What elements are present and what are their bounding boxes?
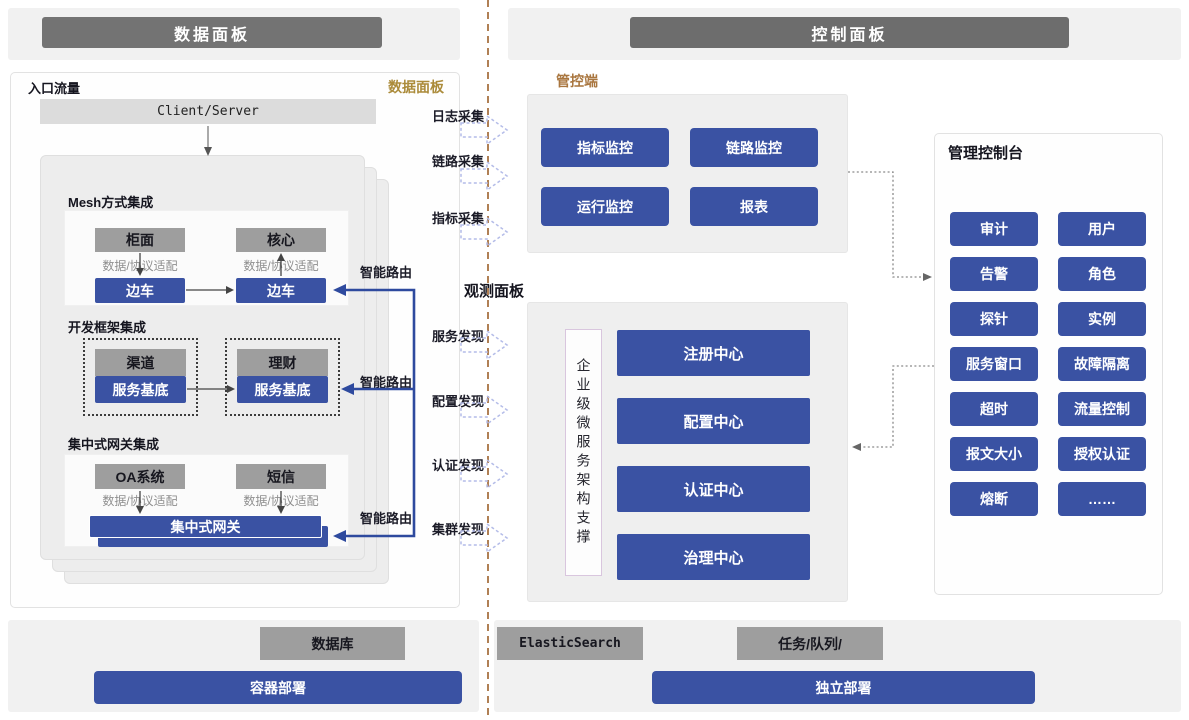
smart-route-label-1: 智能路由 xyxy=(337,262,412,281)
central-gateway-bar: 集中式网关 xyxy=(89,515,322,538)
architecture-diagram: 数据面板 控制面板 入口流量 数据面板 Client/Server Mesh方式… xyxy=(0,0,1189,720)
mesh-section-title: Mesh方式集成 xyxy=(68,192,153,211)
infra-standalone-deploy: 独立部署 xyxy=(652,671,1035,704)
gateway-adapter-left: 数据/协议适配 xyxy=(85,492,195,509)
gateway-node-oa: OA系统 xyxy=(95,464,185,489)
mesh-node-guimian: 柜面 xyxy=(95,228,185,252)
connector-arrowhead-right-icon xyxy=(923,273,932,281)
control-plane-header: 控制面板 xyxy=(630,17,1069,48)
infra-elasticsearch: ElasticSearch xyxy=(497,627,643,660)
framework-node-qudao: 渠道 xyxy=(95,349,186,376)
monitor-btn-metrics: 指标监控 xyxy=(541,128,669,167)
console-title: 管理控制台 xyxy=(948,142,1023,163)
center-auth: 认证中心 xyxy=(617,466,810,512)
framework-section-title: 开发框架集成 xyxy=(68,317,146,336)
console-btn-timeout: 超时 xyxy=(950,392,1038,426)
console-btn-instance: 实例 xyxy=(1058,302,1146,336)
service-base-right: 服务基底 xyxy=(237,376,328,403)
smart-route-label-3: 智能路由 xyxy=(337,508,412,527)
service-base-left: 服务基底 xyxy=(95,376,186,403)
console-btn-role: 角色 xyxy=(1058,257,1146,291)
monitor-btn-report: 报表 xyxy=(690,187,818,226)
observe-panel-title: 观测面板 xyxy=(452,280,536,301)
entry-traffic-label: 入口流量 xyxy=(28,78,80,97)
console-to-microservice-connector xyxy=(861,366,934,447)
gateway-adapter-right: 数据/协议适配 xyxy=(226,492,336,509)
console-btn-probe: 探针 xyxy=(950,302,1038,336)
mesh-node-hexin: 核心 xyxy=(236,228,326,252)
console-btn-fault-isolation: 故障隔离 xyxy=(1058,347,1146,381)
console-btn-alert: 告警 xyxy=(950,257,1038,291)
console-btn-message-size: 报文大小 xyxy=(950,437,1038,471)
client-server-bar: Client/Server xyxy=(40,99,376,124)
console-btn-service-window: 服务窗口 xyxy=(950,347,1038,381)
flow-service-discover: 服务发现 xyxy=(420,326,484,345)
center-registry: 注册中心 xyxy=(617,330,810,376)
mesh-adapter-left: 数据/协议适配 xyxy=(85,257,195,274)
flow-config-discover: 配置发现 xyxy=(420,391,484,410)
monitor-btn-runtime: 运行监控 xyxy=(541,187,669,226)
flow-auth-discover: 认证发现 xyxy=(420,455,484,474)
gateway-section-title: 集中式网关集成 xyxy=(68,434,159,453)
sidecar-left: 边车 xyxy=(95,278,185,303)
console-btn-circuit-break: 熔断 xyxy=(950,482,1038,516)
center-governance: 治理中心 xyxy=(617,534,810,580)
flow-log-collect: 日志采集 xyxy=(420,106,484,125)
infra-database: 数据库 xyxy=(260,627,405,660)
monitor-to-console-connector xyxy=(848,172,924,277)
connector-arrowhead-left-icon xyxy=(852,443,861,451)
flow-cluster-discover: 集群发现 xyxy=(420,519,484,538)
center-config: 配置中心 xyxy=(617,398,810,444)
data-plane-corner-tag: 数据面板 xyxy=(360,77,444,97)
flow-trace-collect: 链路采集 xyxy=(420,151,484,170)
infra-task-queue: 任务/队列/ xyxy=(737,627,883,660)
sidecar-right: 边车 xyxy=(236,278,326,303)
console-btn-more: …… xyxy=(1058,482,1146,516)
data-plane-header: 数据面板 xyxy=(42,17,382,48)
monitor-btn-trace: 链路监控 xyxy=(690,128,818,167)
monitor-panel xyxy=(527,94,848,253)
microservice-side-label: 企业级微服务架构支撑 xyxy=(565,329,602,576)
gateway-node-sms: 短信 xyxy=(236,464,326,489)
console-btn-audit: 审计 xyxy=(950,212,1038,246)
infra-container-deploy: 容器部署 xyxy=(94,671,462,704)
framework-node-licai: 理财 xyxy=(237,349,328,376)
flow-metric-collect: 指标采集 xyxy=(420,208,484,227)
console-btn-authz: 授权认证 xyxy=(1058,437,1146,471)
console-btn-flow-control: 流量控制 xyxy=(1058,392,1146,426)
console-btn-user: 用户 xyxy=(1058,212,1146,246)
monitor-tag: 管控端 xyxy=(556,71,598,91)
mesh-adapter-right: 数据/协议适配 xyxy=(226,257,336,274)
smart-route-label-2: 智能路由 xyxy=(337,372,412,391)
